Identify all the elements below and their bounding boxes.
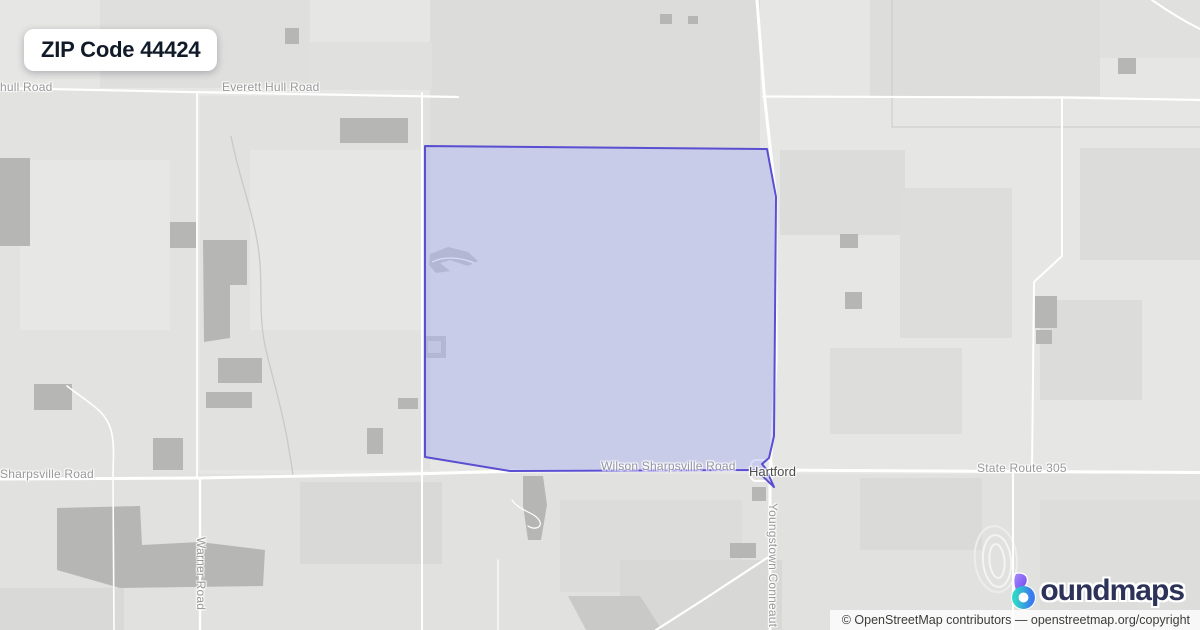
- boundmaps-wordmark: oundmaps: [1040, 576, 1184, 606]
- zip-boundary-polygon: [425, 146, 776, 487]
- map-canvas[interactable]: hull Road Everett Hull Road Sharpsville …: [0, 0, 1200, 630]
- boundmaps-drop-icon: [1009, 572, 1039, 610]
- zip-badge: ZIP Code 44424: [24, 29, 217, 71]
- attribution-bar: © OpenStreetMap contributors — openstree…: [830, 610, 1200, 630]
- boundmaps-logo: oundmaps: [1009, 572, 1184, 610]
- map-render: [0, 0, 1200, 630]
- zip-badge-title: ZIP Code 44424: [41, 37, 200, 62]
- attribution-copyright-link[interactable]: © OpenStreetMap contributors — openstree…: [842, 613, 1190, 627]
